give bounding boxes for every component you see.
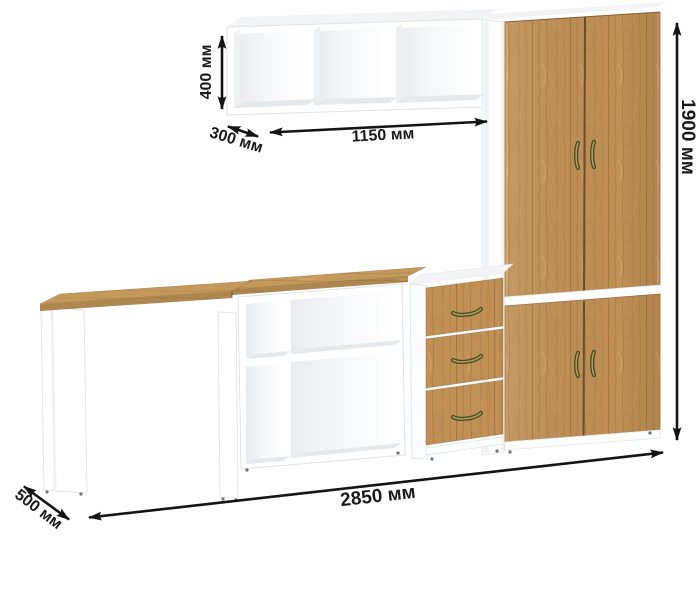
furniture-dimension-diagram: 400 мм 300 мм 1150 мм 1900 мм 2850 мм 50… [0,0,700,606]
drawer-front [426,380,503,445]
dim-shelf-height-label: 400 мм [198,45,216,100]
upper-door-gap [584,17,585,291]
shelf-compartment [396,26,475,103]
desk-left-panel [41,307,87,493]
cube-shelf-unit [238,284,405,469]
dim-shelf-width-label: 1150 мм [351,125,415,146]
lower-door-gap [584,301,585,436]
wardrobe [482,2,665,455]
shelf-compartment [234,31,307,108]
furniture-illustration [0,0,700,606]
cube-compartment [246,301,283,359]
drawer-unit [410,264,513,459]
cube-compartment [291,353,394,458]
drawer-unit-left-panel [410,284,428,459]
desk-middle-panel [218,312,238,498]
cube-compartment [246,364,283,464]
wall-shelf-compartments [234,24,485,108]
wardrobe-upper-doors [505,12,660,297]
wall-shelf [227,9,497,115]
drawer-front [426,278,503,336]
wardrobe-lower-doors [505,294,660,442]
shelf-compartment [314,28,389,105]
dim-total-height-label: 1900 мм [676,99,698,175]
